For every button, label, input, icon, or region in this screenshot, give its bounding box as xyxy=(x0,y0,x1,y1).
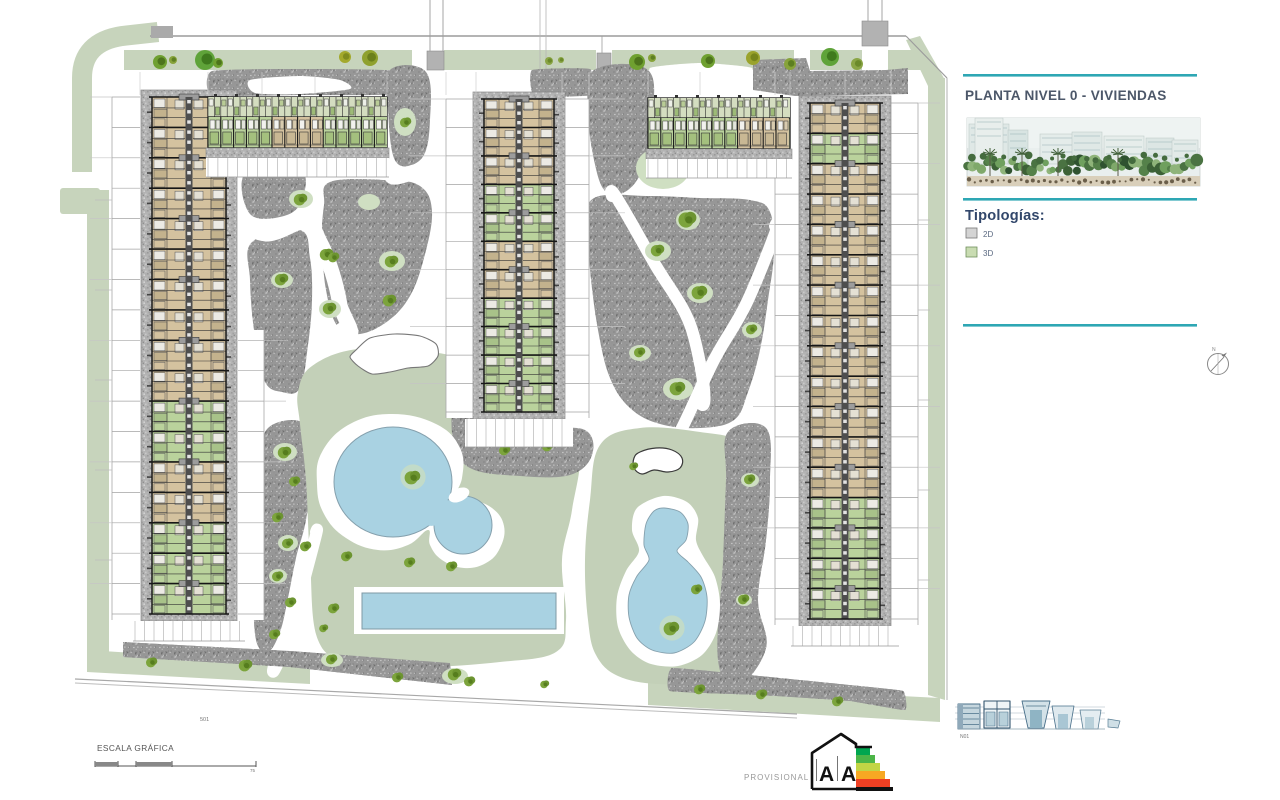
svg-text:N01: N01 xyxy=(960,734,969,740)
svg-text:ESCALA GRÁFICA: ESCALA GRÁFICA xyxy=(97,743,174,753)
svg-text:Tipologías:: Tipologías: xyxy=(965,208,1045,224)
svg-text:501: 501 xyxy=(200,717,209,723)
svg-text:75: 75 xyxy=(250,768,256,773)
svg-text:A: A xyxy=(841,763,856,786)
svg-text:N: N xyxy=(1212,347,1216,353)
svg-text:A: A xyxy=(819,763,834,786)
svg-text:PROVISIONAL: PROVISIONAL xyxy=(744,773,809,782)
svg-text:2D: 2D xyxy=(983,230,993,239)
svg-text:PLANTA NIVEL 0 - VIVIENDAS: PLANTA NIVEL 0 - VIVIENDAS xyxy=(965,88,1167,103)
svg-text:3D: 3D xyxy=(983,249,993,258)
